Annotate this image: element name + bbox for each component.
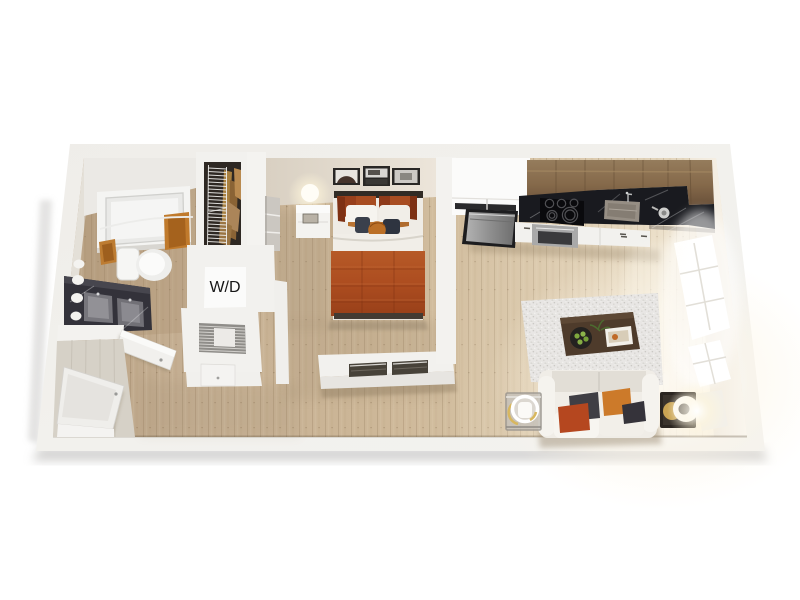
svg-text:W/D: W/D	[209, 279, 240, 296]
